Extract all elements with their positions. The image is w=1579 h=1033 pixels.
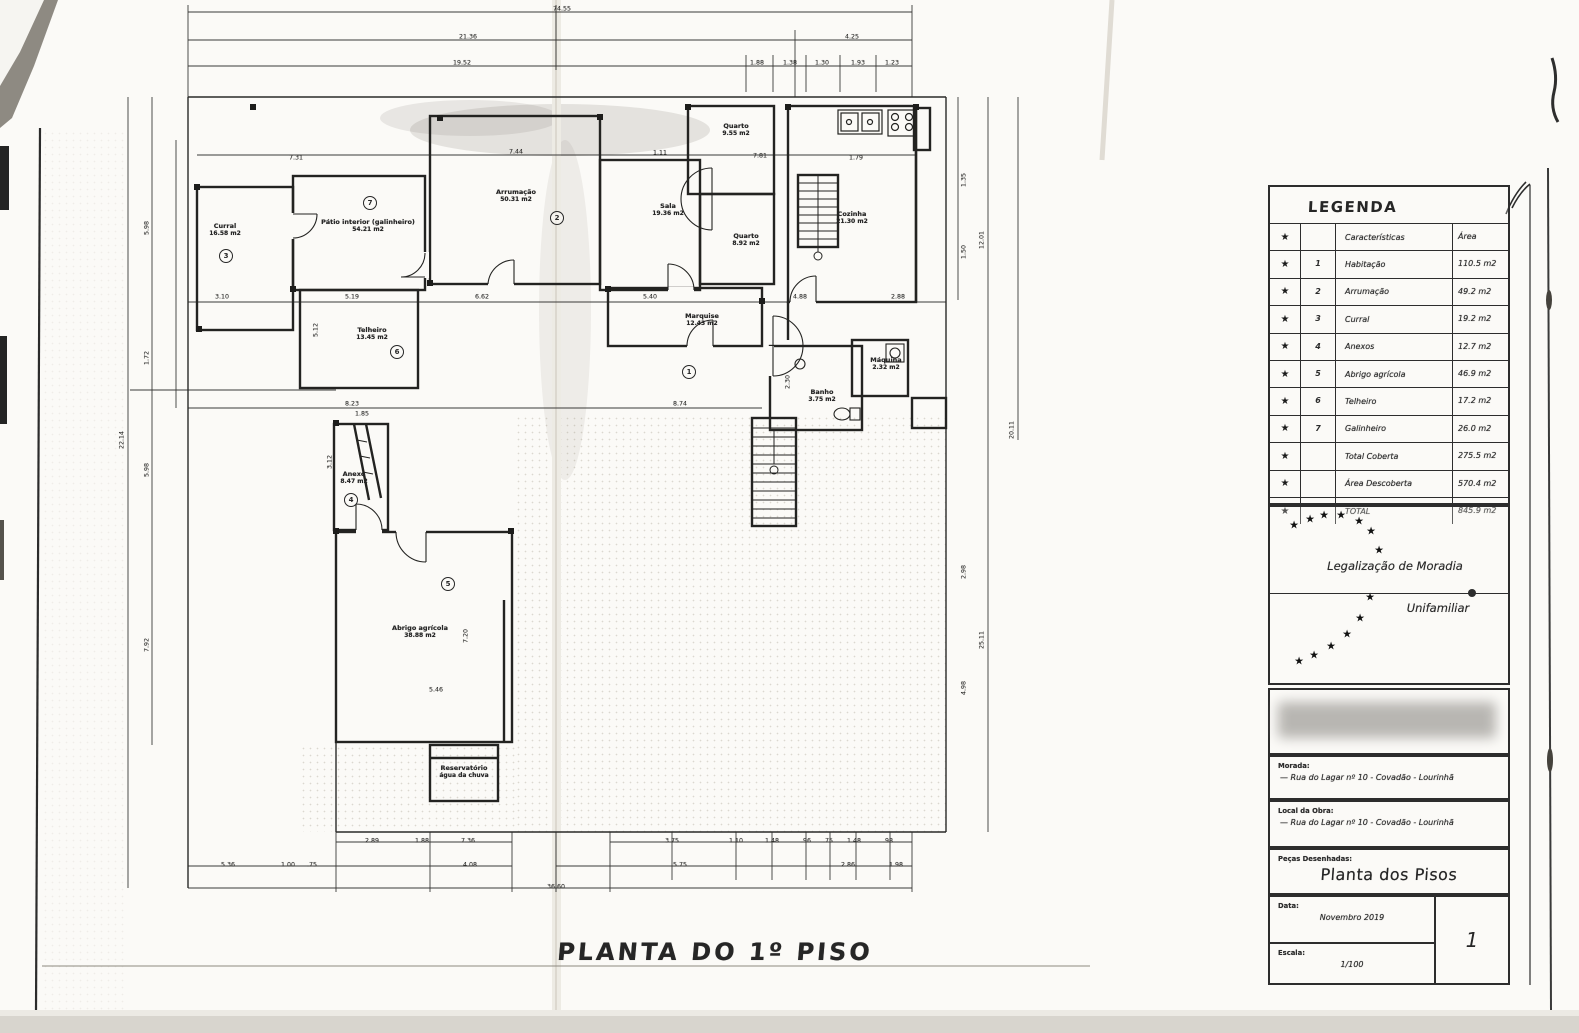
escala-value: 1/100: [1270, 957, 1434, 969]
star-icon: ★: [1366, 525, 1376, 538]
room-number-marker: 1: [682, 365, 696, 379]
room-number-marker: 4: [344, 493, 358, 507]
dimension-label: 2.88: [891, 294, 905, 301]
dimension-label: 1.88: [415, 838, 429, 845]
legend-num-cell: 7: [1300, 416, 1336, 442]
dimension-label: 36.60: [547, 884, 565, 891]
room-label: Cozinha21.30 m2: [836, 210, 868, 226]
room-area: 9.55 m2: [722, 130, 749, 138]
legend-row: ★Área Descoberta570.4 m2: [1270, 470, 1508, 497]
local-obra-box: Local da Obra: — Rua do Lagar nº 10 - Co…: [1268, 800, 1510, 848]
legend-row: ★3Curral19.2 m2: [1270, 305, 1508, 332]
dimension-label: 4.25: [845, 34, 859, 41]
dimension-label: 2.89: [365, 838, 379, 845]
room-name: Marquise: [685, 312, 719, 320]
star-icon: ★: [1270, 286, 1300, 297]
legend-num-cell: 4: [1300, 334, 1336, 360]
data-escala-box: Data: Novembro 2019 Escala: 1/100 1: [1268, 895, 1510, 985]
dimension-label: 5.98: [144, 463, 151, 477]
legend-name-cell: Área Descoberta: [1336, 479, 1452, 488]
room-name: Máquina: [870, 356, 901, 364]
room-area: 8.47 m2: [340, 478, 367, 486]
legend-row: ★7Galinheiro26.0 m2: [1270, 415, 1508, 442]
dimension-label: 1.10: [729, 838, 743, 845]
dimension-label: 3.75: [665, 838, 679, 845]
dimension-label: 4.08: [463, 862, 477, 869]
morada-box: Morada: — Rua do Lagar nº 10 - Covadão -…: [1268, 755, 1510, 800]
room-area: 8.92 m2: [732, 240, 759, 248]
escala-cell: Escala: 1/100: [1270, 942, 1434, 987]
room-label: Arrumação50.31 m2: [496, 188, 536, 204]
stamp-line1: Legalização de Moradia: [1305, 559, 1485, 573]
legend-num-cell: 2: [1300, 279, 1336, 305]
dimension-label: 4.98: [961, 681, 968, 695]
dimension-label: 7.92: [144, 638, 151, 652]
applicant-box: [1268, 688, 1510, 755]
room-area: 3.75 m2: [808, 396, 835, 404]
room-area: 13.45 m2: [356, 334, 388, 342]
dimension-label: 1.88: [750, 60, 764, 67]
room-name: Abrigo agrícola: [392, 624, 448, 632]
dimension-label: 1.38: [783, 60, 797, 67]
dimension-label: 2.30: [785, 375, 792, 389]
legend-title: LEGENDA: [1269, 187, 1509, 223]
dimension-label: 1.50: [961, 245, 968, 259]
dimension-label: 74.55: [553, 6, 571, 13]
room-label: Anexo8.47 m2: [340, 470, 367, 486]
room-name: Arrumação: [496, 188, 536, 196]
data-value: Novembro 2019: [1270, 910, 1434, 922]
legend-row: ★2Arrumação49.2 m2: [1270, 278, 1508, 305]
room-label: Máquina2.32 m2: [870, 356, 901, 372]
dimension-label: 5.36: [221, 862, 235, 869]
star-icon: ★: [1354, 515, 1364, 528]
dimension-label: 7.44: [509, 149, 523, 156]
room-number-marker: 7: [363, 196, 377, 210]
star-icon: ★: [1326, 640, 1336, 653]
star-icon: ★: [1270, 259, 1300, 270]
dimension-label: 4.88: [793, 294, 807, 301]
legend-area-cell: 12.7 m2: [1452, 334, 1508, 360]
legend-name-cell: Arrumação: [1336, 287, 1452, 296]
dimension-label: 1.93: [851, 60, 865, 67]
legend-name-cell: Habitação: [1336, 260, 1452, 269]
legend-area-cell: 275.5 m2: [1452, 443, 1508, 469]
data-label: Data:: [1270, 897, 1434, 910]
star-icon: ★: [1309, 649, 1319, 662]
local-obra-label: Local da Obra:: [1270, 802, 1508, 815]
drawing-title: PLANTA DO 1º PISO: [556, 938, 874, 966]
legend-area-cell: 19.2 m2: [1452, 306, 1508, 332]
room-label: Quarto9.55 m2: [722, 122, 749, 138]
room-name: Cozinha: [836, 210, 868, 218]
dimension-label: .98: [883, 838, 893, 845]
legend-area-cell: 110.5 m2: [1452, 251, 1508, 277]
legend-num-cell: 6: [1300, 388, 1336, 414]
star-icon: ★: [1270, 396, 1300, 407]
dimension-label: 6.62: [475, 294, 489, 301]
room-label: Abrigo agrícola38.88 m2: [392, 624, 448, 640]
dimension-label: 1.30: [815, 60, 829, 67]
pecas-label: Peças Desenhadas:: [1270, 850, 1508, 863]
star-icon: ★: [1270, 369, 1300, 380]
room-label: Curral16.58 m2: [209, 222, 241, 238]
room-label: Banho3.75 m2: [808, 388, 835, 404]
dimension-label: 5.40: [643, 294, 657, 301]
room-label: Pátio interior (galinheiro)54.21 m2: [321, 218, 415, 234]
legend-name-cell: Anexos: [1336, 342, 1452, 351]
legend-name-cell: Curral: [1336, 315, 1452, 324]
escala-label: Escala:: [1270, 944, 1434, 957]
room-area: 12.43 m2: [685, 320, 719, 328]
room-name: Telheiro: [356, 326, 388, 334]
star-icon: ★: [1270, 478, 1300, 489]
dimension-label: 1.00: [281, 862, 295, 869]
dimension-label: .96: [801, 838, 811, 845]
dimension-label: 1.23: [885, 60, 899, 67]
dimension-label: 7.36: [461, 838, 475, 845]
room-name: Quarto: [722, 122, 749, 130]
pecas-value: Planta dos Pisos: [1269, 863, 1508, 884]
room-number-marker: 3: [219, 249, 233, 263]
dimension-label: 25.11: [979, 631, 986, 649]
dimension-label: 1.98: [889, 862, 903, 869]
legend-row: ★5Abrigo agrícola46.9 m2: [1270, 360, 1508, 387]
dimension-label: 5.75: [673, 862, 687, 869]
star-icon: ★: [1270, 423, 1300, 434]
dimension-label: 5.12: [313, 323, 320, 337]
scan-mark: [1552, 58, 1558, 122]
dimension-label: 1.85: [355, 411, 369, 418]
dimension-label: .75: [823, 838, 833, 845]
pecas-box: Peças Desenhadas: Planta dos Pisos: [1268, 848, 1510, 895]
room-name: Pátio interior (galinheiro): [321, 218, 415, 226]
room-area: 2.32 m2: [870, 364, 901, 372]
dimension-label: 1.48: [847, 838, 861, 845]
legend-area-cell: 49.2 m2: [1452, 279, 1508, 305]
room-number-marker: 2: [550, 211, 564, 225]
room-label: Reservatórioágua da chuva: [439, 764, 488, 780]
legend-name-cell: Características: [1336, 233, 1452, 242]
room-name: Curral: [209, 222, 241, 230]
room-label: Quarto8.92 m2: [732, 232, 759, 248]
star-icon: ★: [1342, 628, 1352, 641]
sheet-trim-line: [36, 128, 40, 1012]
dimension-label: 2.98: [961, 565, 968, 579]
legend-num-cell: [1300, 224, 1336, 250]
scanned-floor-plan-sheet: Curral16.58 m2Pátio interior (galinheiro…: [0, 0, 1579, 1033]
room-area: 16.58 m2: [209, 230, 241, 238]
room-label: Sala19.36 m2: [652, 202, 684, 218]
dimension-label: 5.19: [345, 294, 359, 301]
legend-row: ★Total Coberta275.5 m2: [1270, 442, 1508, 469]
dimension-label: 20.11: [1009, 421, 1016, 439]
dimension-label: 19.52: [453, 60, 471, 67]
legend-area-cell: 46.9 m2: [1452, 361, 1508, 387]
legend-row: ★1Habitação110.5 m2: [1270, 250, 1508, 277]
room-area: 38.88 m2: [392, 632, 448, 640]
legend-area-cell: 570.4 m2: [1452, 471, 1508, 497]
dimension-label: 1.72: [144, 351, 151, 365]
morada-value: — Rua do Lagar nº 10 - Covadão - Lourinh…: [1270, 770, 1508, 782]
dimension-label: 3.12: [327, 455, 334, 469]
dimension-label: 22.14: [119, 431, 126, 449]
legend-num-cell: 1: [1300, 251, 1336, 277]
dimension-label: 2.86: [841, 862, 855, 869]
legend-box: LEGENDA ★CaracterísticasÁrea★1Habitação1…: [1268, 185, 1510, 505]
dimension-label: 1.79: [849, 155, 863, 162]
dimension-label: 8.74: [673, 401, 687, 408]
room-name: Anexo: [340, 470, 367, 478]
dimension-label: 7.31: [289, 155, 303, 162]
dimension-label: 7.20: [463, 629, 470, 643]
star-icon: ★: [1319, 509, 1329, 522]
legend-row: ★CaracterísticasÁrea: [1270, 223, 1508, 250]
star-icon: ★: [1270, 451, 1300, 462]
legend-name-cell: Galinheiro: [1336, 424, 1452, 433]
dimension-label: 3.10: [215, 294, 229, 301]
data-cell: Data: Novembro 2019: [1270, 897, 1434, 942]
dimension-label: 5.98: [144, 221, 151, 235]
room-name: Banho: [808, 388, 835, 396]
star-icon: ★: [1289, 519, 1299, 532]
room-area: 54.21 m2: [321, 226, 415, 234]
room-name: Sala: [652, 202, 684, 210]
room-area: água da chuva: [439, 772, 488, 780]
legend-row: ★4Anexos12.7 m2: [1270, 333, 1508, 360]
legend-area-cell: Área: [1452, 224, 1508, 250]
star-icon: ★: [1355, 612, 1365, 625]
room-name: Quarto: [732, 232, 759, 240]
dimension-label: 12.01: [979, 231, 986, 249]
legend-num-cell: [1300, 471, 1336, 497]
star-icon: ★: [1374, 544, 1384, 557]
dimension-label: 5.46: [429, 687, 443, 694]
room-number-marker: 6: [390, 345, 404, 359]
dimension-label: 1.11: [653, 150, 667, 157]
local-obra-value: — Rua do Lagar nº 10 - Covadão - Lourinh…: [1270, 815, 1508, 827]
legend-num-cell: [1300, 443, 1336, 469]
dimension-label: 21.36: [459, 34, 477, 41]
node-dot: [1468, 589, 1476, 597]
legend-area-cell: 17.2 m2: [1452, 388, 1508, 414]
legend-num-cell: 5: [1300, 361, 1336, 387]
sheet-number: 1: [1436, 897, 1508, 983]
dimension-label: 8.23: [345, 401, 359, 408]
legend-name-cell: Abrigo agrícola: [1336, 370, 1452, 379]
room-area: 19.36 m2: [652, 210, 684, 218]
star-icon: ★: [1270, 341, 1300, 352]
dimension-label: 7.81: [753, 153, 767, 160]
star-icon: ★: [1336, 509, 1346, 522]
morada-label: Morada:: [1270, 757, 1508, 770]
legend-name-cell: Total Coberta: [1336, 452, 1452, 461]
redacted-applicant-name: [1278, 702, 1496, 738]
star-icon: ★: [1294, 655, 1304, 668]
dimension-label: 1.35: [961, 173, 968, 187]
legend-table-body: ★CaracterísticasÁrea★1Habitação110.5 m2★…: [1270, 223, 1508, 524]
star-icon: ★: [1270, 232, 1300, 243]
stamp-line2: Unifamiliar: [1388, 601, 1488, 615]
star-icon: ★: [1305, 513, 1315, 526]
room-area: 21.30 m2: [836, 218, 868, 226]
dimension-label: 1.48: [765, 838, 779, 845]
legend-num-cell: 3: [1300, 306, 1336, 332]
star-icon: ★: [1270, 314, 1300, 325]
room-area: 50.31 m2: [496, 196, 536, 204]
legend-name-cell: Telheiro: [1336, 397, 1452, 406]
stamp-box: ★★★★★★★★★★★★★ Legalização de Moradia Uni…: [1268, 505, 1510, 685]
kitchen-fixtures: [838, 110, 916, 136]
dimension-label: .75: [307, 862, 317, 869]
room-number-marker: 5: [441, 577, 455, 591]
room-label: Marquise12.43 m2: [685, 312, 719, 328]
legend-row: ★6Telheiro17.2 m2: [1270, 387, 1508, 414]
room-label: Telheiro13.45 m2: [356, 326, 388, 342]
legend-area-cell: 26.0 m2: [1452, 416, 1508, 442]
